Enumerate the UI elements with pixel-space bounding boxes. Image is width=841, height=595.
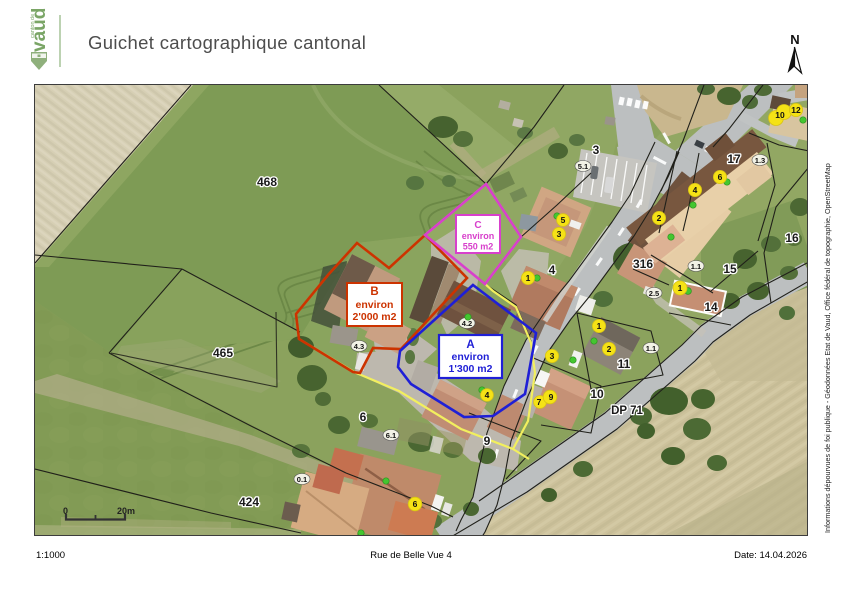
svg-text:9: 9 [549,392,554,402]
svg-text:3: 3 [550,351,555,361]
svg-text:465: 465 [213,346,233,360]
svg-text:15: 15 [723,262,737,276]
svg-text:10: 10 [775,110,785,120]
svg-text:6.1: 6.1 [386,431,396,440]
svg-text:6: 6 [413,499,418,509]
svg-text:B: B [370,286,378,298]
svg-text:2'000 m2: 2'000 m2 [353,311,397,323]
svg-text:1.1: 1.1 [691,262,701,271]
svg-text:5.1: 5.1 [578,162,588,171]
svg-text:7: 7 [537,397,542,407]
svg-text:1: 1 [597,321,602,331]
svg-text:424: 424 [239,495,259,509]
svg-text:11: 11 [618,357,631,371]
svg-text:A: A [466,339,474,351]
svg-text:1.3: 1.3 [755,156,765,165]
svg-text:14: 14 [704,300,718,314]
svg-text:9: 9 [484,434,491,448]
svg-text:environ: environ [356,299,394,311]
svg-text:4.3: 4.3 [354,342,364,351]
svg-text:2: 2 [607,344,612,354]
svg-text:3: 3 [557,229,562,239]
svg-text:16: 16 [785,231,799,245]
svg-text:10: 10 [590,387,604,401]
svg-text:468: 468 [257,175,277,189]
svg-text:5: 5 [561,215,566,225]
svg-text:4: 4 [485,390,490,400]
svg-text:6: 6 [718,172,723,182]
svg-text:2.5: 2.5 [649,289,659,298]
svg-text:environ: environ [462,231,495,241]
svg-text:0.1: 0.1 [297,475,307,484]
svg-text:N: N [790,32,799,47]
svg-text:4: 4 [693,185,698,195]
svg-text:canton de: canton de [30,14,36,38]
svg-text:4: 4 [549,263,556,277]
svg-text:12: 12 [791,105,801,115]
svg-text:1'300 m2: 1'300 m2 [449,363,493,375]
svg-text:Informations dépourvues de foi: Informations dépourvues de foi publique … [823,163,832,533]
svg-text:17: 17 [727,152,741,166]
svg-text:1: 1 [526,273,531,283]
svg-text:3: 3 [593,143,600,157]
svg-text:1.1: 1.1 [646,344,656,353]
svg-text:316: 316 [633,257,653,271]
svg-text:DP 71: DP 71 [611,405,643,417]
svg-text:6: 6 [360,410,367,424]
svg-text:environ: environ [452,351,490,363]
svg-text:550 m2: 550 m2 [463,242,494,252]
svg-text:1: 1 [678,283,683,293]
svg-text:C: C [474,220,481,231]
svg-text:2: 2 [657,213,662,223]
